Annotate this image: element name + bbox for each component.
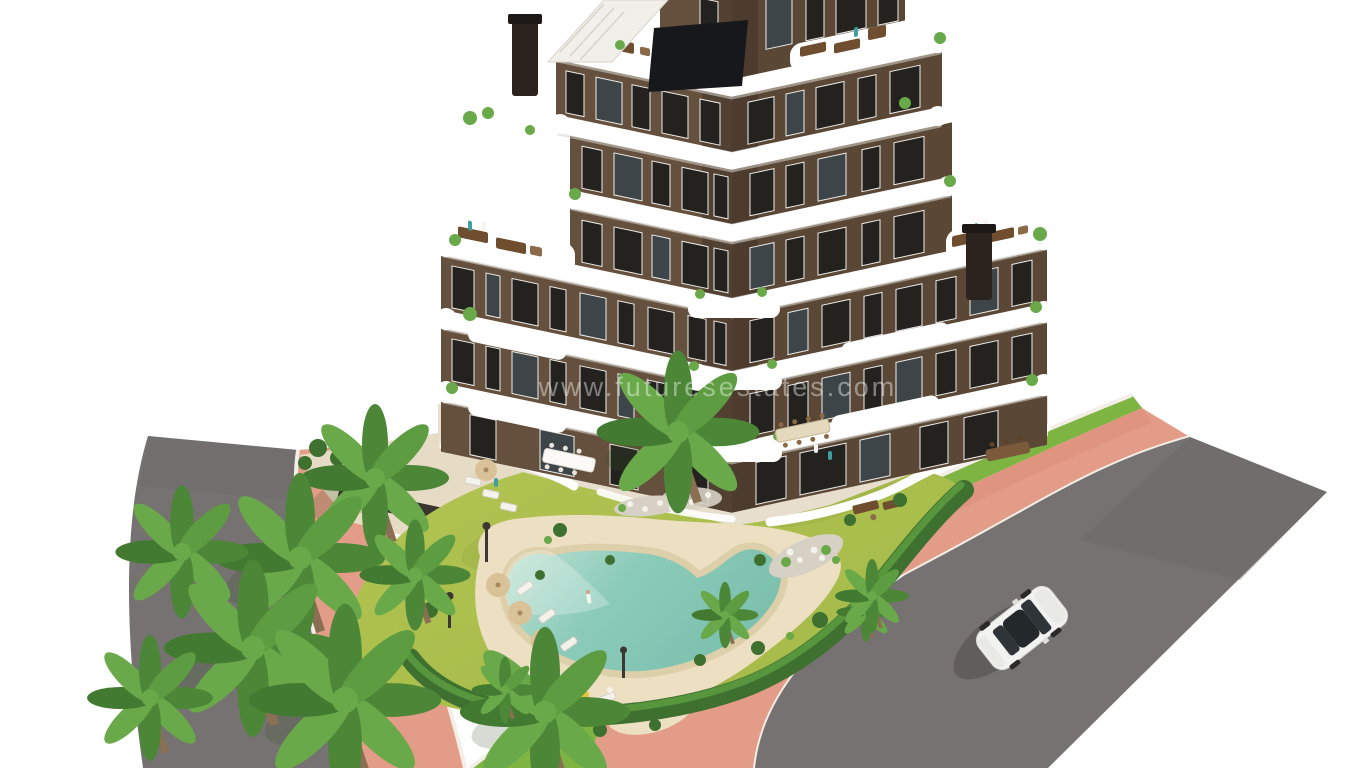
scene-svg: www.futuresestates.com — [0, 0, 1366, 768]
penthouse-glazing — [648, 20, 748, 92]
chimney-left — [512, 18, 538, 96]
chimney-right — [966, 228, 992, 300]
render-canvas: www.futuresestates.com — [0, 0, 1366, 768]
watermark-text: www.futuresestates.com — [538, 372, 898, 402]
